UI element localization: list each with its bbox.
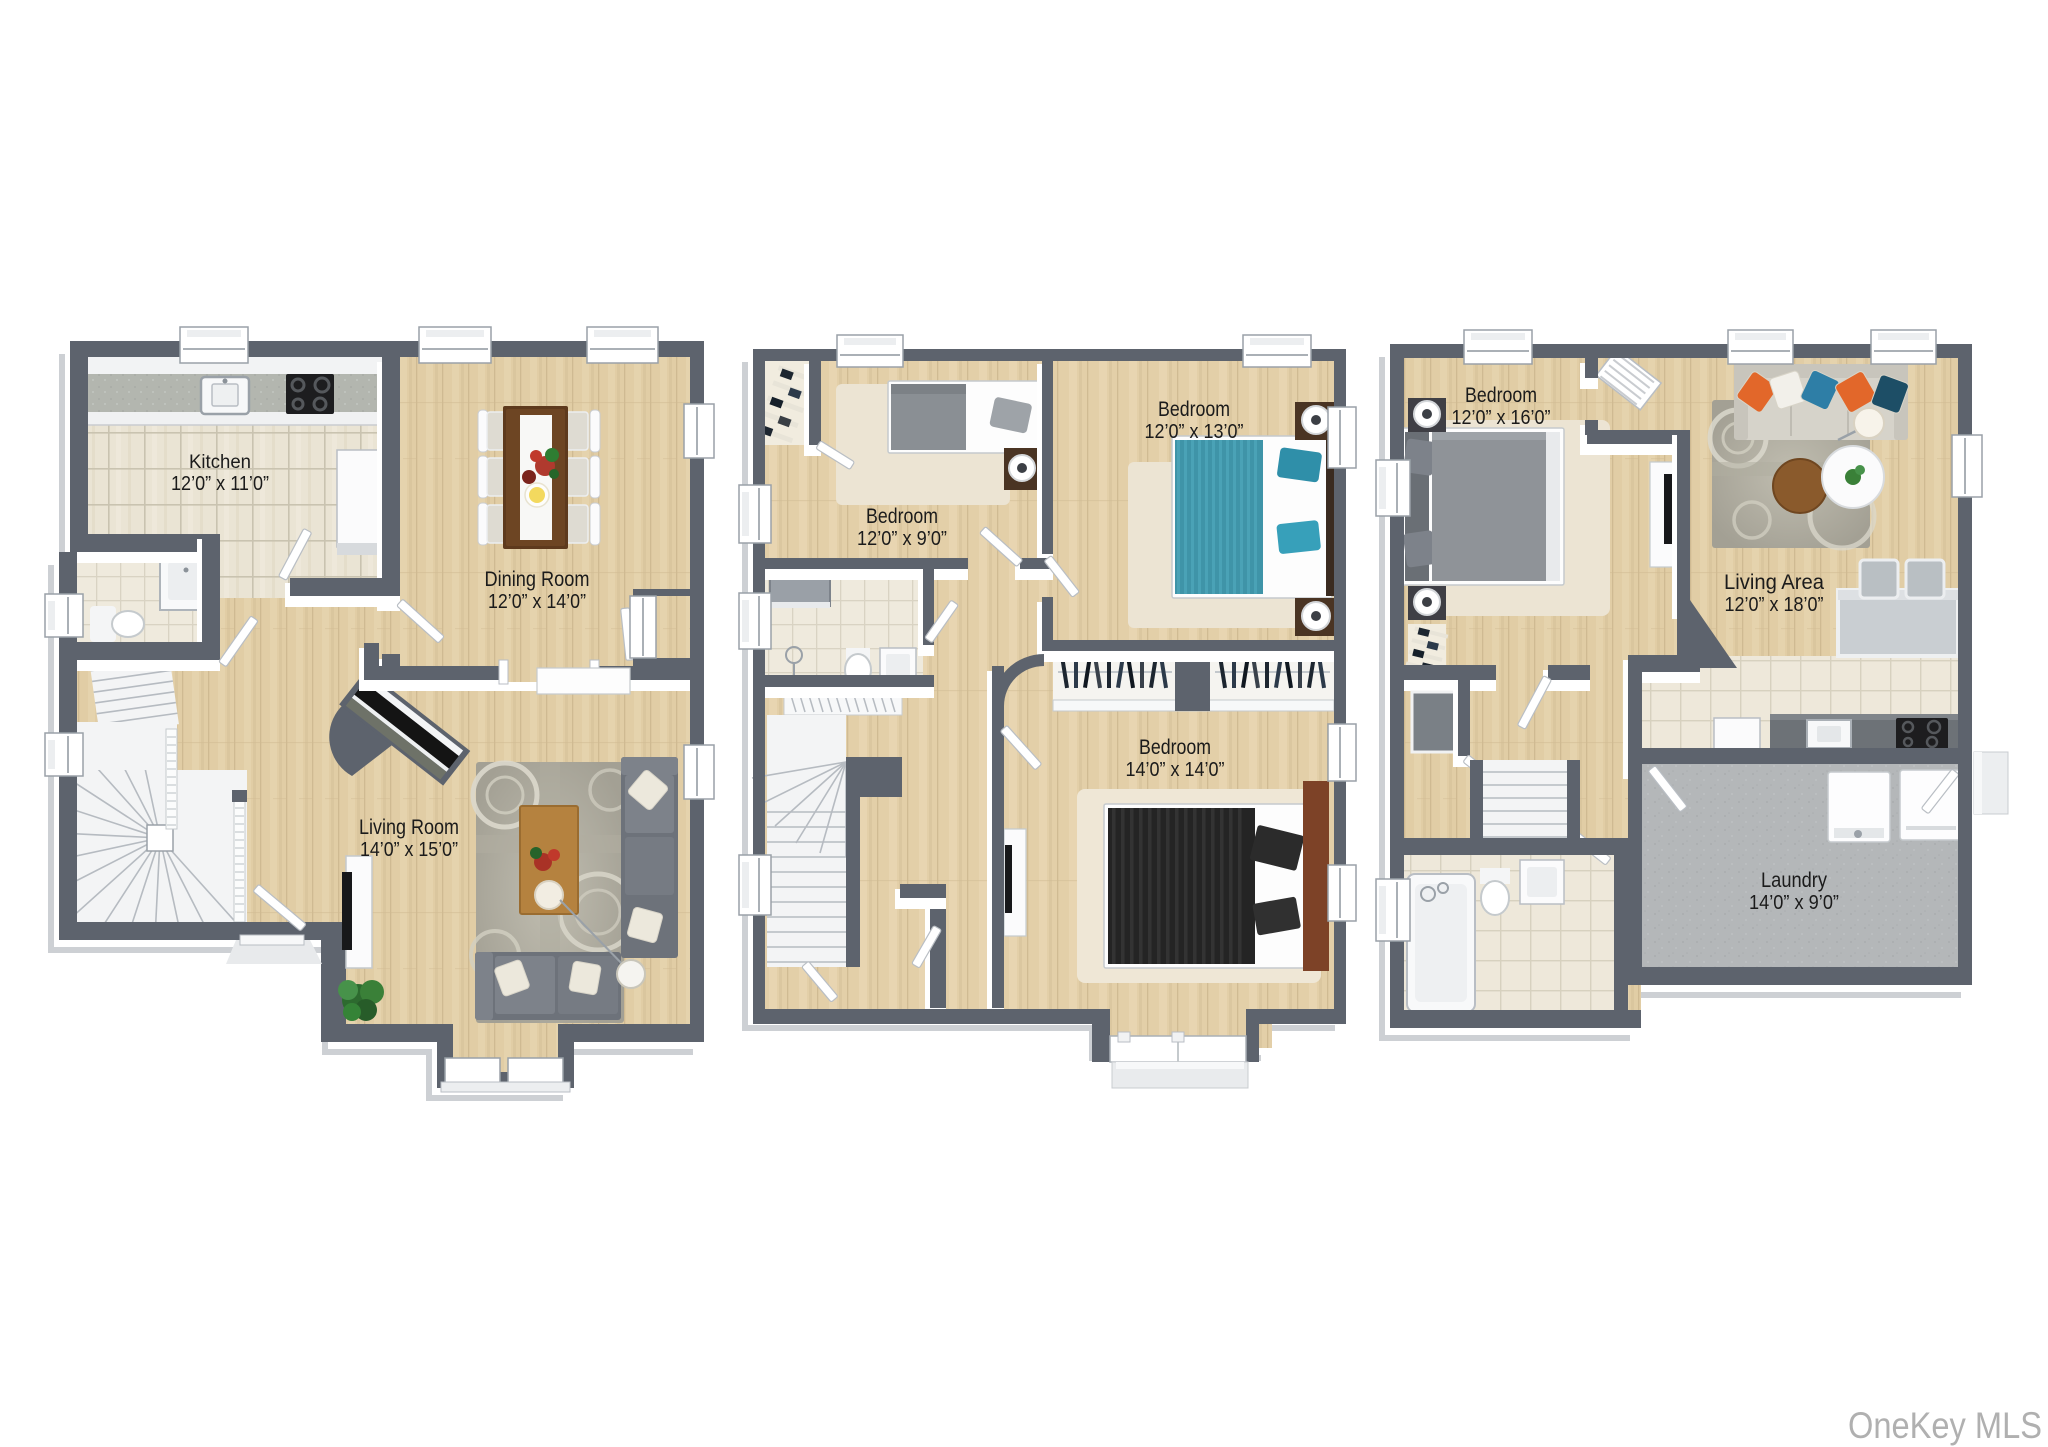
svg-text:Living Area: Living Area (1724, 571, 1824, 594)
svg-text:12’0” x 14’0”: 12’0” x 14’0” (488, 590, 586, 613)
svg-text:14’0” x 14’0”: 14’0” x 14’0” (1126, 758, 1225, 781)
svg-text:Laundry: Laundry (1761, 869, 1827, 892)
svg-text:14’0” x 15’0”: 14’0” x 15’0” (360, 838, 458, 861)
svg-text:Living Room: Living Room (359, 816, 459, 839)
svg-text:OneKey MLS: OneKey MLS (1848, 1405, 2042, 1446)
svg-text:Dining Room: Dining Room (485, 568, 590, 591)
svg-text:Bedroom: Bedroom (866, 505, 938, 528)
svg-text:12’0” x 9’0”: 12’0” x 9’0” (857, 527, 947, 550)
svg-text:Bedroom: Bedroom (1158, 398, 1230, 421)
svg-text:Kitchen: Kitchen (189, 451, 251, 473)
svg-text:Bedroom: Bedroom (1465, 384, 1537, 407)
svg-text:12’0” x 18’0”: 12’0” x 18’0” (1725, 593, 1824, 616)
svg-text:Bedroom: Bedroom (1139, 736, 1211, 759)
svg-text:14’0” x 9’0”: 14’0” x 9’0” (1749, 891, 1839, 914)
svg-text:12’0” x 13’0”: 12’0” x 13’0” (1145, 420, 1244, 443)
svg-text:12’0” x 11’0”: 12’0” x 11’0” (171, 473, 269, 495)
svg-text:12’0” x 16’0”: 12’0” x 16’0” (1452, 406, 1551, 429)
